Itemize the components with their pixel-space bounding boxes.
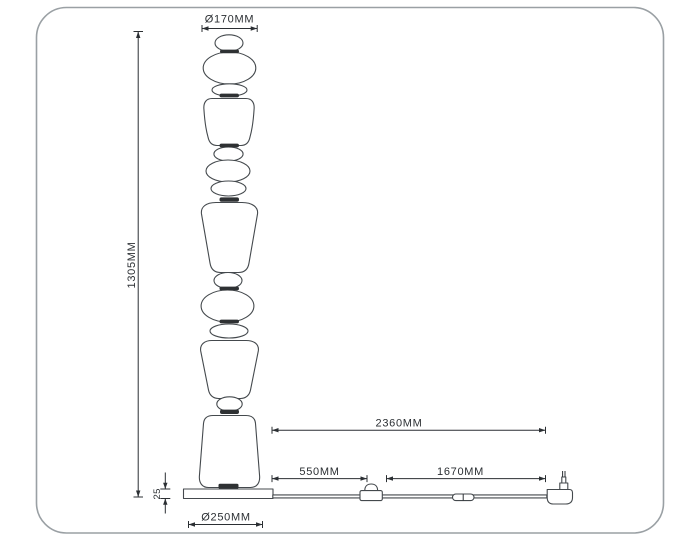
power-plug-body bbox=[547, 490, 572, 505]
glass-shade-trapezoid-2 bbox=[201, 341, 259, 399]
joint-band-6 bbox=[220, 320, 240, 324]
dim-top-diameter: Ø170MM bbox=[202, 14, 257, 33]
joint-band-1 bbox=[220, 50, 239, 54]
joint-band-7 bbox=[220, 410, 239, 414]
glass-shade-oval-large-2 bbox=[201, 290, 254, 322]
plug-pin-collar bbox=[560, 483, 568, 490]
dim-cord-to-switch: 550MM bbox=[272, 466, 367, 482]
dim-cord-total: 2360MM bbox=[272, 418, 546, 434]
base-connector-puck bbox=[219, 484, 239, 489]
glass-shade-disc-2 bbox=[214, 147, 243, 161]
glass-shade-disc-3 bbox=[211, 181, 246, 196]
glass-shade-trapezoid-bottom bbox=[199, 416, 259, 488]
dim-cord-total-label: 2360MM bbox=[376, 418, 423, 430]
dim-switch-to-plug: 1670MM bbox=[387, 466, 546, 482]
cord-switch-bump bbox=[365, 484, 378, 491]
glass-shade-disc-4 bbox=[214, 273, 242, 289]
base-plate bbox=[184, 489, 274, 499]
glass-shade-trapezoid-1 bbox=[201, 203, 257, 273]
power-cord bbox=[273, 495, 547, 498]
lamp-body bbox=[184, 35, 274, 499]
glass-shade-oval-large-1 bbox=[203, 52, 256, 84]
dim-top-diameter-label: Ø170MM bbox=[205, 14, 254, 26]
drawing-canvas: Ø170MM 1305MM 25 Ø250MM 2360MM bbox=[0, 0, 700, 544]
joint-band-5 bbox=[220, 287, 240, 291]
glass-shade-top-pebble bbox=[215, 35, 243, 51]
dim-switch-to-plug-label: 1670MM bbox=[437, 466, 484, 478]
glass-shade-disc-5 bbox=[210, 324, 248, 338]
dim-base-diameter-label: Ø250MM bbox=[201, 512, 250, 524]
dim-base-diameter: Ø250MM bbox=[189, 512, 263, 529]
dim-total-height-label: 1305MM bbox=[126, 242, 138, 289]
cord-switch bbox=[360, 491, 382, 501]
glass-shade-oval-medium bbox=[206, 160, 250, 182]
glass-shade-barrel bbox=[204, 99, 254, 146]
dim-base-thickness: 25 bbox=[152, 473, 170, 514]
plug-pin-base bbox=[562, 477, 566, 483]
joint-band-2 bbox=[220, 94, 240, 98]
dim-total-height: 1305MM bbox=[126, 32, 143, 498]
joint-band-3 bbox=[220, 144, 240, 148]
joint-band-4 bbox=[220, 197, 240, 201]
lamp-dimension-drawing: Ø170MM 1305MM 25 Ø250MM 2360MM bbox=[0, 0, 700, 544]
dim-base-thickness-label: 25 bbox=[152, 488, 163, 499]
glass-shade-disc-6 bbox=[217, 397, 242, 411]
dim-cord-to-switch-label: 550MM bbox=[299, 466, 339, 478]
